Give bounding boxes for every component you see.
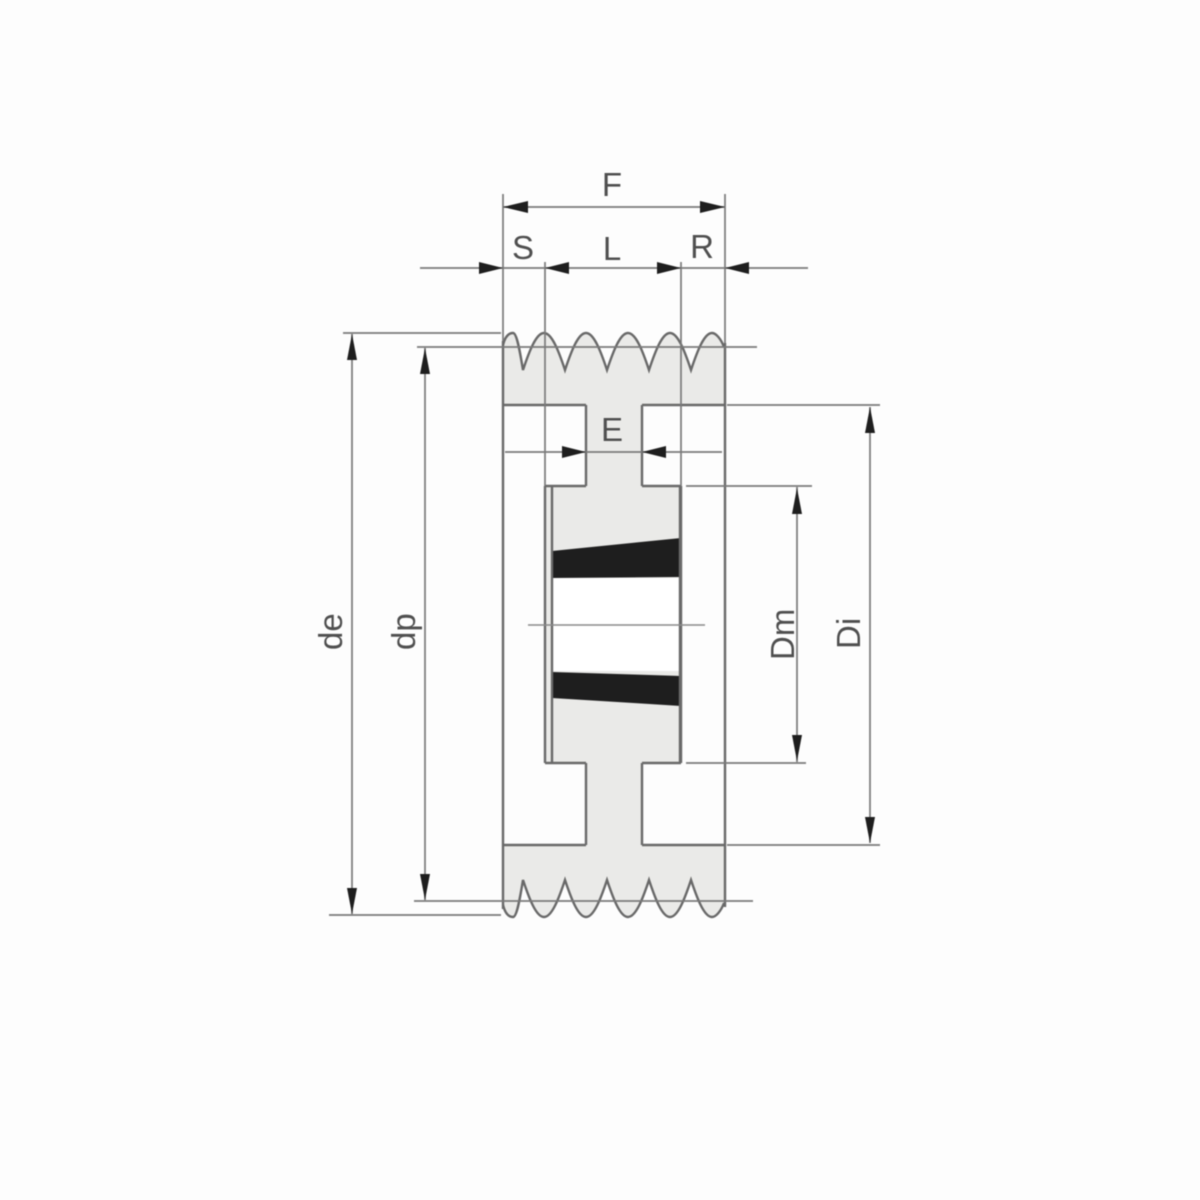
arrow-left-icon xyxy=(642,446,666,458)
arrow-up-icon xyxy=(420,348,430,374)
pulley-section-drawing: F S L R E de xyxy=(0,0,1200,1200)
dim-label-dp: dp xyxy=(385,613,422,650)
dim-label-dm: Dm xyxy=(764,609,801,660)
arrow-up-icon xyxy=(865,407,875,433)
arrow-right-icon xyxy=(479,262,503,274)
arrow-left-icon xyxy=(725,262,749,274)
arrow-left-icon xyxy=(545,262,569,274)
arrow-down-icon xyxy=(865,817,875,843)
screenshot-page: F S L R E de xyxy=(0,0,1200,1200)
arrow-up-icon xyxy=(792,488,802,514)
dim-label-l: L xyxy=(603,230,621,267)
dim-Di: Di xyxy=(727,405,880,845)
arrow-up-icon xyxy=(347,334,357,360)
arrow-down-icon xyxy=(792,735,802,761)
arrow-down-icon xyxy=(420,874,430,900)
arrow-left-icon xyxy=(503,201,528,213)
arrow-right-icon xyxy=(657,262,681,274)
web-bottom-fill xyxy=(586,763,642,845)
arrow-right-icon xyxy=(562,446,586,458)
dim-label-r: R xyxy=(690,228,714,265)
dim-label-s: S xyxy=(512,229,534,266)
arrow-down-icon xyxy=(347,888,357,914)
arrow-right-icon xyxy=(700,201,725,213)
dim-label-de: de xyxy=(312,613,349,650)
dim-label-e: E xyxy=(601,411,623,448)
dim-label-f: F xyxy=(602,166,622,203)
dim-label-di: Di xyxy=(830,618,867,649)
